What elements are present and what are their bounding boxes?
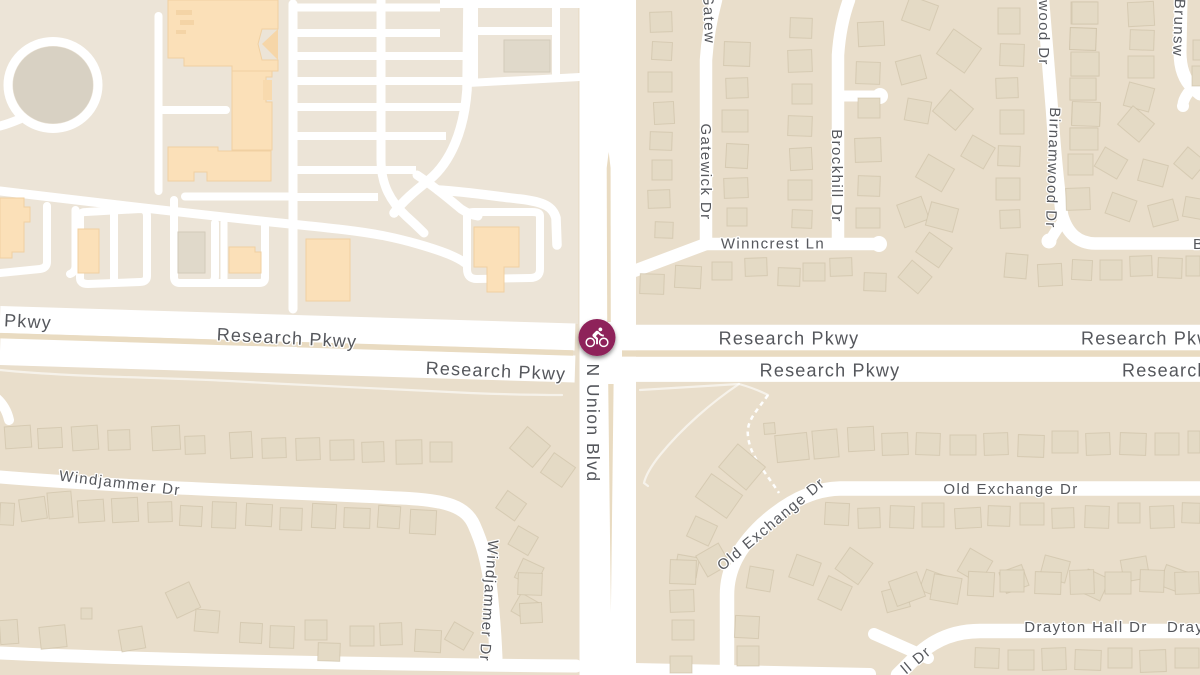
svg-text:Brockhill Dr: Brockhill Dr [828, 129, 845, 222]
svg-text:Gatew: Gatew [699, 0, 718, 44]
svg-text:Research Pkwy: Research Pkwy [760, 361, 901, 381]
svg-text:Gatewick Dr: Gatewick Dr [697, 123, 714, 220]
svg-text:N Union Blvd: N Union Blvd [583, 364, 603, 483]
svg-text:Brunsw: Brunsw [1169, 0, 1188, 57]
svg-text:Research Pkwy: Research Pkwy [1081, 329, 1200, 349]
svg-text:Winncrest Ln: Winncrest Ln [721, 236, 825, 253]
svg-text:Pkwy: Pkwy [4, 310, 53, 332]
svg-text:Old Exchange Dr: Old Exchange Dr [943, 481, 1078, 498]
svg-text:Research Pkwy: Research Pkwy [719, 329, 860, 349]
svg-text:Research Pkwy: Research Pkwy [1122, 361, 1200, 381]
svg-text:B: B [1193, 236, 1200, 253]
svg-text:Drayton: Drayton [1167, 619, 1200, 636]
svg-text:wood Dr: wood Dr [1035, 0, 1052, 66]
svg-text:Drayton Hall Dr: Drayton Hall Dr [1024, 619, 1148, 636]
